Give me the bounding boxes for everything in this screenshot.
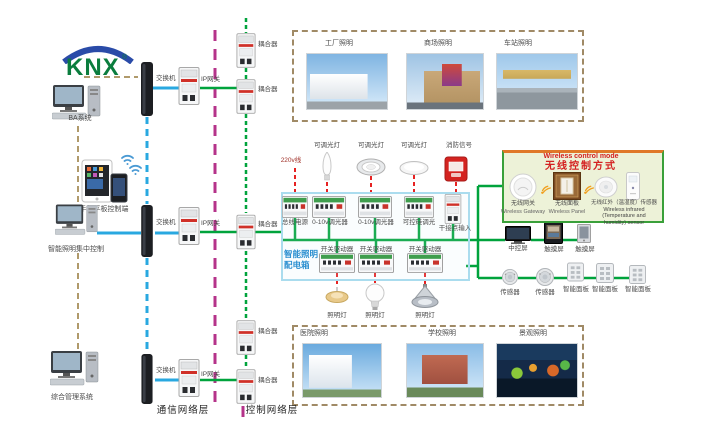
management-system-label: 综合管理系统 bbox=[51, 394, 93, 402]
landscape-lighting-label: 景观照明 bbox=[519, 330, 547, 338]
smart-panel-1-icon bbox=[567, 262, 584, 282]
knx-logo-reg: ® bbox=[122, 54, 127, 61]
factory-lighting-label: 工厂照明 bbox=[325, 40, 353, 48]
dimmer-0-10v-2-label: 0-10v调光器 bbox=[358, 219, 394, 226]
management-computer-icon bbox=[50, 350, 100, 394]
distribution-box-title-line2: 配电箱 bbox=[284, 260, 318, 271]
dry-contact-input-icon bbox=[443, 194, 463, 224]
wireless-gateway-label-zh: 无线网关 bbox=[511, 201, 535, 208]
coupler-3-icon bbox=[236, 213, 256, 251]
central-screen-icon bbox=[505, 226, 531, 244]
sensor-2-icon bbox=[536, 268, 554, 286]
lamp-2-label: 照明灯 bbox=[365, 312, 385, 319]
hospital-lighting-label: 医院照明 bbox=[300, 330, 328, 338]
thyristor-dimmer-label: 可控硅调光 bbox=[403, 219, 436, 226]
switch-3-icon bbox=[140, 354, 154, 404]
coupler-1-icon bbox=[236, 33, 256, 68]
mobile-tablet-icon bbox=[80, 148, 142, 206]
lamp-1-label: 照明灯 bbox=[327, 312, 347, 319]
dimmable-light-1-label: 可调光灯 bbox=[314, 142, 340, 149]
sensor-1-icon bbox=[502, 269, 518, 285]
touch-screen-1-icon bbox=[544, 222, 563, 244]
touch-screen-2-icon bbox=[577, 224, 591, 243]
ceiling-lamp-icon bbox=[325, 287, 349, 305]
photo-school-lighting bbox=[406, 343, 484, 398]
switch-driver-2-icon bbox=[358, 253, 394, 273]
wireless-title-zh: 无线控制方式 bbox=[545, 161, 617, 173]
switch-driver-3-icon bbox=[407, 253, 443, 273]
dimmer-0-10v-1-icon bbox=[312, 196, 346, 218]
ip-gateway-2-icon bbox=[178, 207, 200, 245]
fire-signal-label: 消防信号 bbox=[446, 142, 472, 149]
dimmable-light-2-label: 可调光灯 bbox=[358, 142, 384, 149]
switch-2-label: 交换机 bbox=[156, 219, 176, 226]
coupler-2-icon bbox=[236, 79, 256, 114]
fire-alarm-icon bbox=[444, 156, 468, 182]
highbay-lamp-icon bbox=[410, 284, 440, 308]
distribution-box-title-line1: 智能照明 bbox=[284, 249, 318, 260]
bus-power-supply-icon bbox=[282, 196, 308, 218]
smart-panel-2-label: 智能面板 bbox=[592, 286, 618, 293]
ip-gateway-2-label: IP网关 bbox=[201, 220, 220, 227]
wireless-panel-label-zh: 无线面板 bbox=[555, 201, 579, 208]
wireless-infrared-sensor-icon bbox=[594, 176, 618, 198]
coupler-4-icon bbox=[236, 320, 256, 355]
smart-panel-2-icon bbox=[596, 263, 614, 283]
switch-3-label: 交换机 bbox=[156, 367, 176, 374]
ba-computer-label: BA系统 bbox=[68, 115, 91, 123]
knx-lighting-system-diagram: 智能照明 配电箱 KNX ® BA系统 手机平板控制端 智能照明集中控制 综合管… bbox=[0, 0, 715, 443]
dimmer-0-10v-1-label: 0-10v调光器 bbox=[312, 219, 348, 226]
wireless-panel-icon bbox=[553, 172, 581, 200]
central-control-label: 智能照明集中控制 bbox=[48, 246, 104, 254]
switch-driver-1-icon bbox=[319, 253, 355, 273]
candle-bulb-icon bbox=[321, 152, 333, 182]
bulb-lamp-icon bbox=[365, 283, 385, 311]
ip-gateway-3-icon bbox=[178, 359, 200, 397]
photo-mall-lighting bbox=[406, 53, 484, 110]
photo-landscape-lighting bbox=[496, 343, 578, 398]
coupler-1-label: 耦合器 bbox=[258, 41, 278, 48]
photo-hospital-lighting bbox=[302, 343, 382, 398]
dimmable-light-3-label: 可调光灯 bbox=[401, 142, 427, 149]
dry-contact-input-label: 干接点输入 bbox=[439, 225, 472, 232]
switch-1-icon bbox=[140, 62, 154, 116]
station-lighting-label: 车站照明 bbox=[504, 40, 532, 48]
ip-gateway-1-icon bbox=[178, 67, 200, 105]
panel-light-icon bbox=[399, 161, 429, 175]
wireless-title-en: Wireless control mode bbox=[543, 153, 618, 161]
coupler-5-icon bbox=[236, 369, 256, 404]
mains-220v-label: 220v线 bbox=[281, 157, 302, 164]
wireless-panel-label-en: Wireless Panel bbox=[549, 209, 586, 215]
mall-lighting-label: 商场照明 bbox=[424, 40, 452, 48]
photo-station-lighting bbox=[496, 53, 578, 110]
central-control-computer-icon bbox=[55, 203, 99, 243]
bus-power-supply-label: 总线电源 bbox=[282, 219, 308, 226]
smart-panel-3-label: 智能面板 bbox=[625, 286, 651, 293]
sensor-2-label: 传感器 bbox=[535, 289, 555, 296]
central-screen-label: 中控屏 bbox=[508, 245, 528, 252]
dimmer-0-10v-2-icon bbox=[358, 196, 392, 218]
coupler-5-label: 耦合器 bbox=[258, 377, 278, 384]
sensor-1-label: 传感器 bbox=[500, 289, 520, 296]
coupler-4-label: 耦合器 bbox=[258, 328, 278, 335]
wireless-gateway-label-en: Wireless Gateway bbox=[501, 209, 545, 215]
wireless-sensor-label-zh: 无线红外（温湿度）传感器 bbox=[591, 200, 657, 206]
school-lighting-label: 学校照明 bbox=[428, 330, 456, 338]
coupler-3-label: 耦合器 bbox=[258, 221, 278, 228]
control-layer-label: 控制网络层 bbox=[246, 406, 299, 417]
touch-screen-1-label: 触摸屏 bbox=[544, 246, 564, 253]
wireless-gateway-icon bbox=[508, 173, 538, 201]
coupler-2-label: 耦合器 bbox=[258, 86, 278, 93]
smart-panel-3-icon bbox=[629, 265, 646, 284]
touch-screen-2-label: 触摸屏 bbox=[575, 246, 595, 253]
distribution-box-title: 智能照明 配电箱 bbox=[284, 249, 318, 270]
wireless-wall-sensor-icon bbox=[626, 172, 640, 200]
wireless-sensor-label-en: Wireless infrared (Temperature and humid… bbox=[591, 207, 657, 226]
smart-panel-1-label: 智能面板 bbox=[563, 286, 589, 293]
knx-logo: KNX ® bbox=[56, 40, 140, 88]
switch-2-icon bbox=[140, 205, 154, 257]
downlight-icon bbox=[356, 158, 386, 176]
photo-factory-lighting bbox=[306, 53, 388, 110]
ip-gateway-1-label: IP网关 bbox=[201, 76, 220, 83]
switch-1-label: 交换机 bbox=[156, 75, 176, 82]
thyristor-dimmer-icon bbox=[404, 196, 434, 218]
wireless-signal-icon bbox=[540, 181, 552, 195]
knx-logo-text: KNX bbox=[66, 54, 120, 82]
communication-layer-label: 通信网络层 bbox=[157, 406, 210, 417]
ip-gateway-3-label: IP网关 bbox=[201, 371, 220, 378]
lamp-3-label: 照明灯 bbox=[415, 312, 435, 319]
